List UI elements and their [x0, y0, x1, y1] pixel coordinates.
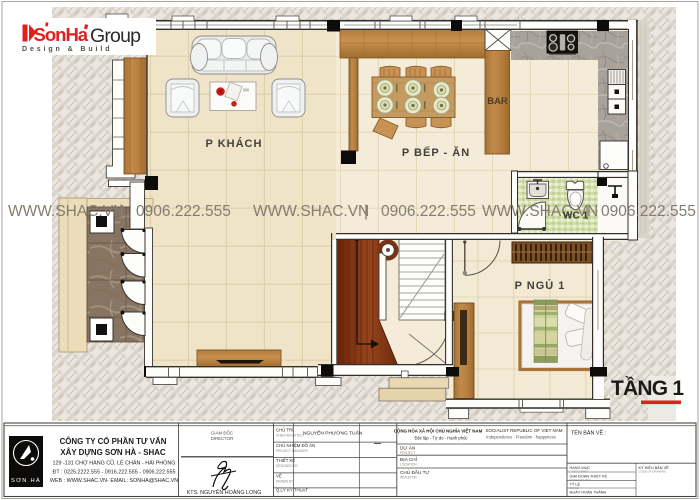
svg-text:GIÁM ĐỐC: GIÁM ĐỐC — [211, 431, 233, 436]
svg-text:CHỦ NHIỆM ĐỒ ÁN: CHỦ NHIỆM ĐỒ ÁN — [276, 443, 315, 448]
svg-text:0906.222.555: 0906.222.555 — [136, 203, 231, 220]
svg-text:DIRECTOR: DIRECTOR — [211, 436, 234, 441]
svg-text:|: | — [119, 203, 123, 220]
svg-text:INVESTOR: INVESTOR — [400, 476, 417, 480]
svg-text:DESIGNED BY: DESIGNED BY — [276, 464, 299, 468]
svg-text:SonHa: SonHa — [34, 24, 89, 45]
svg-text:VẼ: VẼ — [276, 473, 282, 478]
svg-text:THIẾT KẾ: THIẾT KẾ — [276, 458, 295, 463]
svg-text:CODE OF DRAWING: CODE OF DRAWING — [639, 470, 668, 474]
svg-text:PROJECT: PROJECT — [400, 451, 415, 455]
svg-text:SCALE: SCALE — [570, 486, 580, 490]
svg-text:Độc lập - Tự do - Hạnh phúc: Độc lập - Tự do - Hạnh phúc — [414, 436, 467, 441]
svg-text:P KHÁCH: P KHÁCH — [206, 137, 263, 150]
svg-text:DRAWN BY: DRAWN BY — [276, 479, 294, 483]
svg-text:0906.222.555: 0906.222.555 — [601, 203, 696, 220]
svg-text:Design & Build: Design & Build — [22, 46, 112, 53]
svg-text:CỘNG HÒA XÃ HỘI CHỦ NGHĨA VIỆT: CỘNG HÒA XÃ HỘI CHỦ NGHĨA VIỆT NAM — [394, 429, 483, 434]
svg-text:P NGỦ 1: P NGỦ 1 — [515, 279, 566, 292]
svg-text:Group: Group — [90, 25, 141, 47]
svg-text:WEB : WWW.SHAC.VN- EMAIL: SONH: WEB : WWW.SHAC.VN- EMAIL: SONHA@SHAC.VN — [50, 478, 178, 484]
svg-text:Independence - Freedom - happy: Independence - Freedom - happyness — [486, 435, 555, 440]
svg-text:WWW.SHAC.VN: WWW.SHAC.VN — [8, 203, 124, 220]
svg-text:WC 1: WC 1 — [563, 211, 588, 222]
svg-text:DESIGN PHASE: DESIGN PHASE — [570, 478, 592, 482]
svg-text:PROJECT MANAGER: PROJECT MANAGER — [276, 449, 309, 453]
svg-text:SOCIALIST REPUBLIC OF VIET NAM: SOCIALIST REPUBLIC OF VIET NAM — [485, 428, 562, 433]
svg-text:LOCATION: LOCATION — [400, 463, 417, 467]
svg-text:SƠN HÀ: SƠN HÀ — [11, 477, 41, 484]
svg-text:CHỦ ĐẦU TƯ: CHỦ ĐẦU TƯ — [400, 469, 429, 475]
svg-text:TẦNG 1: TẦNG 1 — [611, 377, 684, 400]
svg-text:KTS. NGUYỄN HOÀNG LONG: KTS. NGUYỄN HOÀNG LONG — [187, 489, 262, 496]
svg-text:CHIEF ARCHITECT: CHIEF ARCHITECT — [276, 434, 305, 438]
svg-text:0906.222.555: 0906.222.555 — [381, 203, 476, 220]
svg-text:P BẾP - ĂN: P BẾP - ĂN — [402, 146, 470, 159]
svg-text:129 -131 CHỢ HÀNG CŨ, LÊ CHÂN: 129 -131 CHỢ HÀNG CŨ, LÊ CHÂN - HẢI PHÒN… — [53, 459, 176, 467]
svg-text:NGÀY HOÀN THÀNH: NGÀY HOÀN THÀNH — [570, 491, 607, 495]
svg-text:NGUYỄN PHƯƠNG TUẤN: NGUYỄN PHƯƠNG TUẤN — [303, 430, 363, 437]
svg-text:CÔNG TY CỔ PHẦN TƯ VẤN: CÔNG TY CỔ PHẦN TƯ VẤN — [60, 436, 167, 446]
svg-text:TÊN BẢN VẼ :: TÊN BẢN VẼ : — [571, 429, 606, 437]
svg-text:WWW.SHAC.VN: WWW.SHAC.VN — [253, 203, 369, 220]
svg-text:CATEGORIES: CATEGORIES — [570, 470, 589, 474]
svg-text:|: | — [364, 203, 368, 220]
svg-text:BAR: BAR — [487, 96, 508, 107]
svg-text:CHỦ TRÌ: CHỦ TRÌ — [276, 428, 293, 433]
svg-text:ĐỊA CHỈ: ĐỊA CHỈ — [400, 456, 418, 462]
svg-text:ĐT : 0225.2222.555 - 0916.222.: ĐT : 0225.2222.555 - 0916.222.555 - 0906… — [52, 469, 175, 475]
svg-text:XÂY DỰNG SƠN HÀ - SHAC: XÂY DỰNG SƠN HÀ - SHAC — [60, 448, 165, 457]
svg-text:DỰ ÁN: DỰ ÁN — [400, 445, 415, 451]
